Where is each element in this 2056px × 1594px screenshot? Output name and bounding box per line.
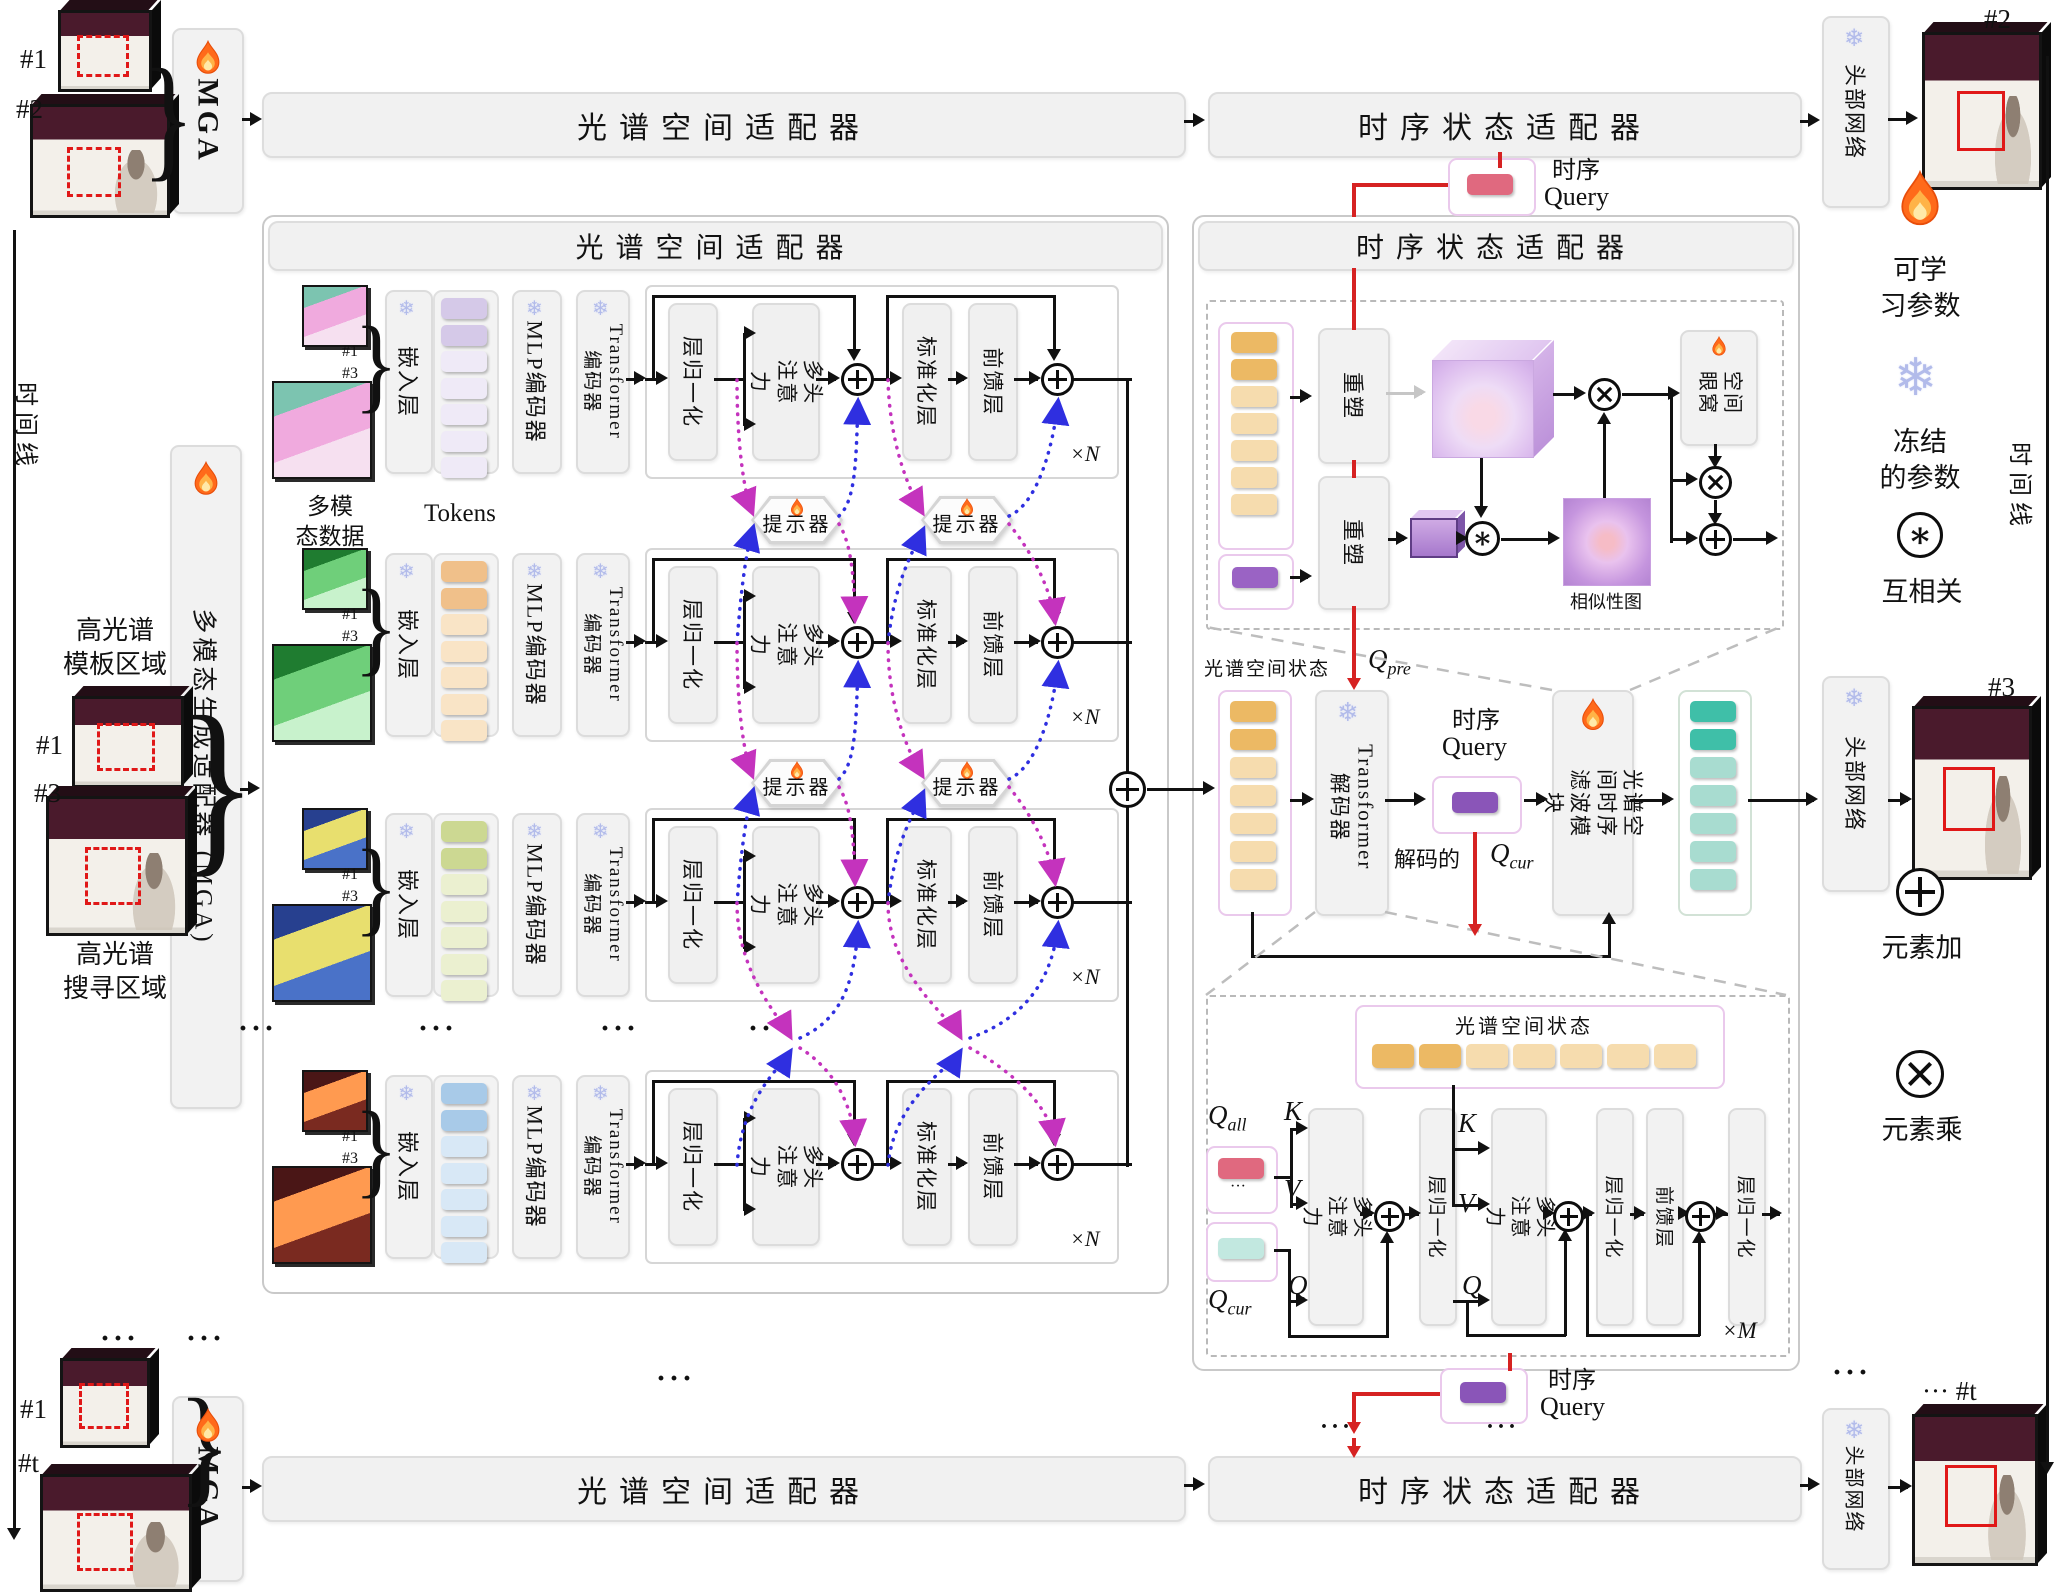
temporal-query-bottom-en: Query [1540, 1392, 1605, 1422]
snowflake-icon: ❄ [592, 1083, 609, 1103]
spatial-mask-block: 空间眼窝 [1680, 330, 1758, 446]
transformer-encoder-label: Transformer编码器 [579, 324, 627, 440]
layer-norm-label: 层归一化 [678, 859, 708, 951]
legend-elem-mul: 元素乘 [1862, 1108, 1982, 1147]
norm-layer-label: 标准化层 [912, 859, 942, 951]
ellipsis: ··· [748, 1012, 787, 1046]
flame-icon-legend [1892, 170, 1948, 232]
head-network-top: ❄ 头部网络 [1822, 16, 1890, 208]
ffn-block: 前馈层 [968, 826, 1018, 984]
filter-module-block: 光谱空间时序滤波模块 [1552, 690, 1634, 916]
architecture-diagram: { "labels": { "spectral_adapter": "光谱空间适… [0, 0, 2056, 1594]
mlp-encoder-label: MLP编码器 [521, 1105, 553, 1228]
brace: } [354, 1088, 398, 1210]
ellipsis: ··· [100, 1322, 139, 1356]
ellipsis: ··· [186, 1322, 225, 1356]
prompter-1b: 提示器 [921, 496, 1013, 544]
spectral-adapter-bar-top: 光谱空间适配器 [262, 92, 1186, 158]
transformer-encoder-label: Transformer编码器 [579, 1109, 627, 1225]
layer-norm-label: 层归一化 [678, 336, 708, 428]
ffn-label: 前馈层 [978, 611, 1008, 680]
q-label-2: Q [1462, 1270, 1482, 1301]
xN-label: ×N [1070, 441, 1100, 467]
filter-module-label: 光谱空间时序滤波模块 [1541, 764, 1646, 842]
spatial-mask-label: 空间眼窝 [1694, 356, 1744, 430]
hsi-search-label: 高光谱搜寻区域 [40, 938, 190, 1006]
token-stack [441, 1075, 487, 1271]
ffn-label: 前馈层 [978, 348, 1008, 417]
norm-layer-label: 标准化层 [912, 599, 942, 691]
encoder-row-modality-4: #1 #3 } ❄ 嵌入层 ❄ MLP编码器 ❄ Transformer编码器 … [272, 1070, 1132, 1260]
flame-icon [958, 761, 976, 781]
mul-legend-icon [1886, 1040, 1954, 1108]
snowflake-icon: ❄ [592, 821, 609, 841]
legend-elem-add: 元素加 [1862, 926, 1982, 965]
state-token-stack [1231, 322, 1277, 525]
timeline-right-label: 时间线 [2005, 442, 2040, 532]
q-cur-label-2: Qcur [1208, 1284, 1252, 1319]
layer-norm-block: 层归一化 [668, 303, 718, 461]
transformer-encoder-label: Transformer编码器 [579, 587, 627, 703]
output-frame2 [1922, 32, 2042, 190]
norm-layer-block: 标准化层 [902, 566, 952, 724]
transformer-decoder-block: ❄ Transformer解码器 [1315, 690, 1389, 916]
mha-block-2: 多头注意力 [1491, 1108, 1547, 1326]
mha-label: 多头注意力 [747, 613, 826, 677]
flame-icon [788, 498, 806, 518]
mha-block: 多头注意力 [752, 1088, 820, 1246]
snowflake-icon: ❄ [398, 821, 415, 841]
add-op [1374, 1201, 1405, 1232]
mha-block: 多头注意力 [752, 826, 820, 984]
ellipsis: ··· [1486, 1414, 1519, 1441]
transformer-decoder-label: Transformer解码器 [1326, 744, 1379, 870]
flame-icon [958, 498, 976, 518]
mlp-encoder-label: MLP编码器 [521, 843, 553, 966]
mha-label: 多头注意力 [747, 873, 826, 937]
flame-icon [1577, 698, 1609, 734]
add-op [1553, 1201, 1584, 1232]
flame-icon [191, 40, 225, 78]
add-op [1041, 1148, 1074, 1181]
cross-corr-legend-icon: ∗ [1897, 512, 1943, 558]
frame1-thumbnail [58, 10, 152, 92]
v-label-1: V [1284, 1174, 1301, 1205]
add-op [841, 626, 874, 659]
snowflake-icon: ❄ [526, 821, 543, 841]
norm-layer-label: 标准化层 [912, 336, 942, 428]
output-frame3 [1912, 706, 2032, 880]
ffn-block: 前馈层 [968, 566, 1018, 724]
snowflake-icon: ❄ [1844, 686, 1864, 710]
norm-layer-block: 标准化层 [902, 303, 952, 461]
temporal-query-label-zh: 时序 [1552, 150, 1600, 185]
snowflake-icon: ❄ [526, 561, 543, 581]
head-network-mid-label: 头部网络 [1840, 736, 1872, 832]
mlp-encoder-block: ❄ MLP编码器 [512, 1075, 562, 1259]
transformer-encoder-block: ❄ Transformer编码器 [576, 290, 630, 474]
q-all-token [1218, 1158, 1264, 1179]
spectral-state-header-label: 光谱空间状态 [1455, 1010, 1593, 1039]
head-network-bottom: ❄ 头部网络 [1822, 1408, 1890, 1570]
add-op [1041, 363, 1074, 396]
brace: } [354, 303, 398, 425]
timeline-left [13, 230, 16, 1534]
snowflake-icon: ❄ [592, 298, 609, 318]
brace: } [354, 566, 398, 688]
ellipsis: ··· [1230, 1178, 1246, 1196]
snowflake-icon-legend: ❄ [1894, 352, 1938, 404]
output-frame3-label: #3 [1988, 672, 2015, 703]
temporal-query-token-top [1467, 174, 1513, 195]
q-all-label: Qall [1208, 1100, 1247, 1135]
temporal-query-mid-zh: 时序 [1452, 700, 1500, 735]
mga-block-top-label: MGA [191, 78, 225, 163]
k-label-1: K [1284, 1096, 1302, 1127]
spectral-state-label: 光谱空间状态 [1204, 654, 1330, 681]
xN-label: ×N [1070, 704, 1100, 730]
merge-add-op [1109, 771, 1146, 808]
reshape-block-2: 重塑 [1318, 476, 1390, 610]
mha-block: 多头注意力 [752, 303, 820, 461]
xM-label: ×M [1722, 1318, 1757, 1344]
add-op [841, 363, 874, 396]
feature-cube [1432, 360, 1534, 458]
mha-block: 多头注意力 [752, 566, 820, 724]
q-cur-label: Qcur [1490, 838, 1534, 873]
k-label-2: K [1458, 1108, 1476, 1139]
temporal-query-label-en: Query [1544, 182, 1609, 212]
prompter-2a: 提示器 [751, 759, 843, 807]
transformer-encoder-block: ❄ Transformer编码器 [576, 813, 630, 997]
query-feature-bar [1410, 518, 1458, 558]
layer-norm-label: 层归一化 [678, 1121, 708, 1213]
layer-norm-block-3: 层归一化 [1728, 1108, 1766, 1326]
add-op [1041, 626, 1074, 659]
snowflake-icon: ❄ [398, 561, 415, 581]
norm-layer-label: 标准化层 [912, 1121, 942, 1213]
norm-layer-block: 标准化层 [902, 1088, 952, 1246]
frame-t-bottom [40, 1474, 192, 1592]
similarity-map [1563, 498, 1651, 586]
frame1-mid [72, 696, 184, 788]
reshape-block-1: 重塑 [1318, 328, 1390, 464]
hsi-template-label: 高光谱模板区域 [40, 614, 190, 682]
layer-norm-block-2: 层归一化 [1596, 1108, 1634, 1326]
head-network-mid: ❄ 头部网络 [1822, 676, 1890, 892]
add-op [1699, 523, 1732, 556]
tokens-label: Tokens [424, 500, 496, 528]
snowflake-icon: ❄ [398, 298, 415, 318]
spectral-adapter-bar-bottom: 光谱空间适配器 [262, 1456, 1186, 1522]
layer-norm-label: 层归一化 [678, 599, 708, 691]
ellipsis: ··· [238, 1012, 277, 1046]
temporal-adapter-detail-title: 时序状态适配器 [1198, 221, 1794, 271]
frame3-mid [46, 796, 188, 936]
transformer-encoder-label: Transformer编码器 [579, 847, 627, 963]
snowflake-icon: ❄ [1844, 1418, 1864, 1442]
frame1-bottom-label: #1 [20, 1394, 47, 1425]
add-op [841, 1148, 874, 1181]
ellipsis: ··· [600, 1012, 639, 1046]
frame2-label: #2 [16, 94, 43, 125]
decoded-label: 解码的 [1394, 842, 1460, 874]
output-token-stack [1690, 690, 1736, 901]
frame1-mid-label: #1 [36, 730, 63, 761]
mlp-encoder-label: MLP编码器 [521, 583, 553, 706]
legend-frozen: 冻结的参数 [1850, 424, 1990, 497]
layer-norm-block: 层归一化 [668, 826, 718, 984]
ffn-block: 前馈层 [968, 303, 1018, 461]
encoder-row-modality-2: #1 #3 } ❄ 嵌入层 ❄ MLP编码器 ❄ Transformer编码器 … [272, 548, 1132, 738]
mha-label: 多头注意力 [747, 350, 826, 414]
multimodal-data-label: 多模态数据 [278, 492, 382, 552]
ellipsis: ··· [1832, 1356, 1871, 1390]
spectral-state-stack [1230, 690, 1276, 901]
mha-label: 多头注意力 [747, 1135, 826, 1199]
temporal-query-token-bottom [1460, 1382, 1506, 1403]
frame3-mid-label: #3 [34, 778, 61, 809]
q-cur-token [1218, 1238, 1264, 1259]
flame-icon [191, 1408, 225, 1446]
v-label-2: V [1458, 1188, 1475, 1219]
xN-label: ×N [1070, 1226, 1100, 1252]
q-label-1: Q [1288, 1270, 1308, 1301]
ffn-label: 前馈层 [978, 871, 1008, 940]
transformer-encoder-block: ❄ Transformer编码器 [576, 553, 630, 737]
ellipsis: ··· [418, 1012, 457, 1046]
flame-icon [1709, 336, 1729, 358]
output-frame-t-label: ··· #t [1922, 1376, 1977, 1407]
temporal-query-token-mid [1452, 792, 1498, 813]
encoder-row-modality-1: #1 #3 } ❄ 嵌入层 ❄ MLP编码器 ❄ Transformer编码器 … [272, 285, 1132, 475]
snowflake-icon: ❄ [526, 1083, 543, 1103]
token-stack [441, 553, 487, 749]
temporal-query-bottom-zh: 时序 [1548, 1360, 1596, 1395]
temporal-adapter-bar-bottom: 时序状态适配器 [1208, 1456, 1802, 1522]
prompter-2b: 提示器 [921, 759, 1013, 807]
timeline-left-label: 时间线 [11, 382, 46, 472]
legend-learnable: 可学习参数 [1850, 252, 1990, 325]
snowflake-icon: ❄ [526, 298, 543, 318]
temporal-adapter-bar-top: 时序状态适配器 [1208, 92, 1802, 158]
add-op [1685, 1201, 1716, 1232]
prompter-1a: 提示器 [751, 496, 843, 544]
spectral-state-header-tokens [1372, 1044, 1696, 1068]
token-stack [441, 290, 487, 486]
similarity-map-label: 相似性图 [1570, 588, 1642, 614]
query-token-purple [1232, 567, 1278, 588]
ffn-block: 前馈层 [968, 1088, 1018, 1246]
frame-t-label: #t [18, 1448, 39, 1479]
ellipsis: ··· [656, 1362, 695, 1396]
output-frame2-label: #2 [1984, 4, 2011, 35]
flame-icon [189, 461, 223, 499]
xN-label: ×N [1070, 964, 1100, 990]
brace: } [142, 38, 195, 197]
temporal-query-mid-en: Query [1442, 732, 1507, 762]
layer-norm-block: 层归一化 [668, 1088, 718, 1246]
frame1-label: #1 [20, 44, 47, 75]
snowflake-icon: ❄ [592, 561, 609, 581]
token-stack [441, 813, 487, 1009]
timeline-right [2046, 56, 2049, 1468]
brace: } [176, 673, 258, 897]
q-pre-label: Qpre [1368, 644, 1411, 679]
add-op [1041, 886, 1074, 919]
snowflake-icon: ❄ [1337, 700, 1359, 726]
flame-icon [788, 761, 806, 781]
mlp-encoder-block: ❄ MLP编码器 [512, 290, 562, 474]
mlp-encoder-label: MLP编码器 [521, 320, 553, 443]
head-network-top-label: 头部网络 [1840, 64, 1872, 160]
cross-corr-op: ∗ [1465, 521, 1500, 556]
head-network-bottom-label: 头部网络 [1842, 1445, 1871, 1533]
snowflake-icon: ❄ [1844, 26, 1864, 50]
add-op [841, 886, 874, 919]
mha-block-1: 多头注意力 [1308, 1108, 1364, 1326]
frame1-bottom [60, 1358, 150, 1448]
output-frame-t [1912, 1414, 2038, 1566]
ffn-label: 前馈层 [978, 1133, 1008, 1202]
add-legend-icon [1896, 868, 1944, 916]
transformer-encoder-block: ❄ Transformer编码器 [576, 1075, 630, 1259]
snowflake-icon: ❄ [398, 1083, 415, 1103]
brace: } [354, 826, 398, 948]
mlp-encoder-block: ❄ MLP编码器 [512, 553, 562, 737]
encoder-row-modality-3: #1 #3 } ❄ 嵌入层 ❄ MLP编码器 ❄ Transformer编码器 … [272, 808, 1132, 998]
legend-cross-corr: 互相关 [1862, 570, 1982, 609]
layer-norm-block: 层归一化 [668, 566, 718, 724]
mlp-encoder-block: ❄ MLP编码器 [512, 813, 562, 997]
norm-layer-block: 标准化层 [902, 826, 952, 984]
